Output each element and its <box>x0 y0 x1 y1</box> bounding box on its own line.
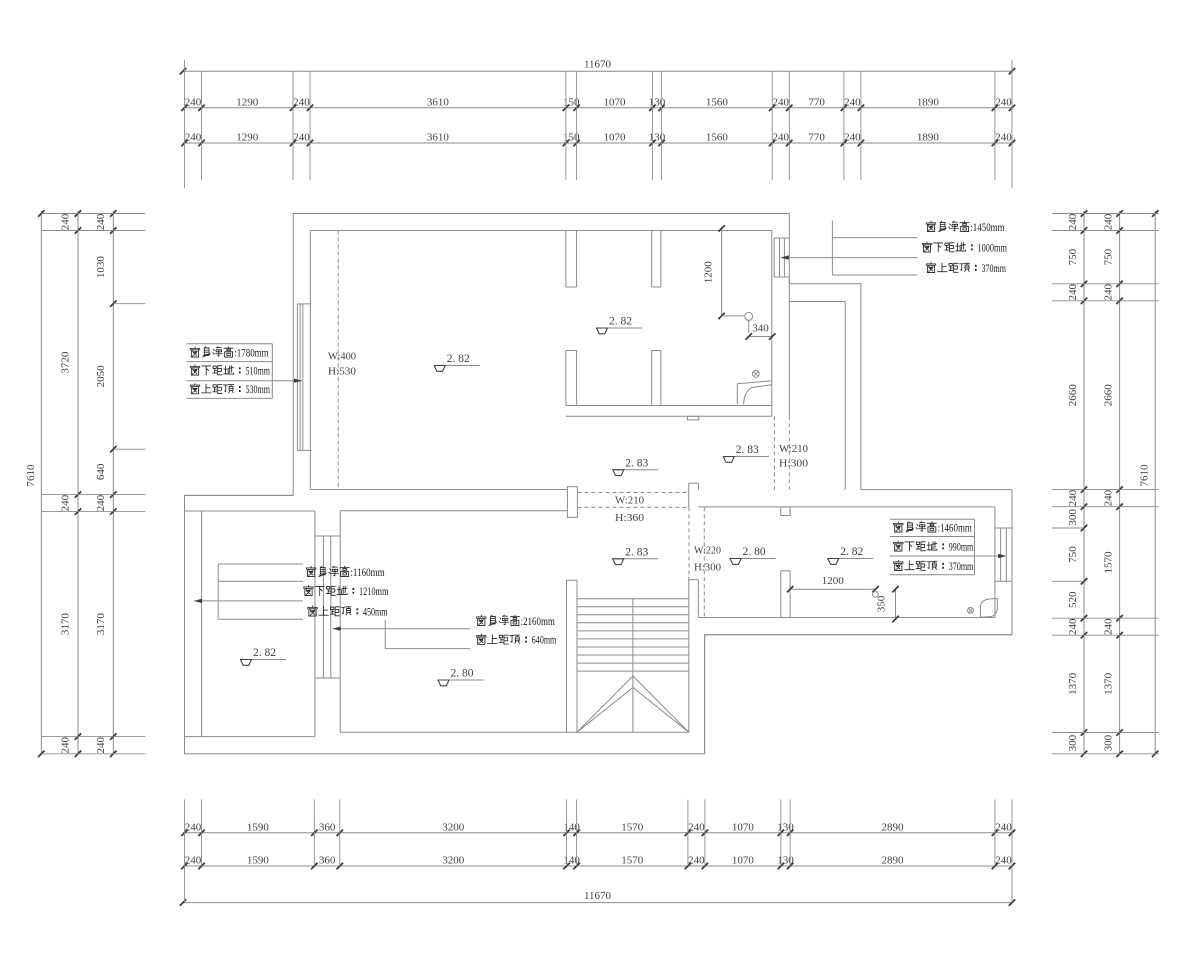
svg-text:240: 240 <box>95 736 107 753</box>
svg-text:450mm: 450mm <box>363 606 388 618</box>
svg-text:240: 240 <box>95 213 107 230</box>
svg-text:2. 82: 2. 82 <box>253 647 276 659</box>
svg-text:1560: 1560 <box>706 132 729 144</box>
svg-text:770: 770 <box>808 132 825 144</box>
svg-text:1570: 1570 <box>621 821 644 833</box>
svg-text:990mm: 990mm <box>949 541 974 553</box>
svg-text:1890: 1890 <box>917 132 940 144</box>
svg-text:140: 140 <box>563 855 580 867</box>
svg-text:370mm: 370mm <box>982 263 1007 275</box>
svg-text:1210mm: 1210mm <box>359 586 388 598</box>
svg-text:300: 300 <box>1067 734 1079 751</box>
svg-text:240: 240 <box>1067 489 1079 506</box>
svg-text:7610: 7610 <box>25 464 37 487</box>
svg-text:W:220: W:220 <box>694 545 721 557</box>
svg-text:350: 350 <box>876 595 888 612</box>
svg-text:2050: 2050 <box>95 365 107 388</box>
svg-text:240: 240 <box>1067 618 1079 635</box>
svg-text:1890: 1890 <box>917 96 940 108</box>
svg-text:240: 240 <box>1103 489 1115 506</box>
svg-text:510mm: 510mm <box>246 365 271 377</box>
svg-text:H:360: H:360 <box>615 512 645 524</box>
svg-text:240: 240 <box>995 821 1012 833</box>
svg-text:240: 240 <box>185 821 202 833</box>
svg-text:2. 83: 2. 83 <box>625 546 648 558</box>
svg-text:770: 770 <box>808 96 825 108</box>
svg-text:2. 83: 2. 83 <box>625 457 648 469</box>
svg-text:240: 240 <box>293 132 310 144</box>
svg-text:240: 240 <box>60 736 72 753</box>
svg-text:370mm: 370mm <box>949 561 974 573</box>
svg-text:1070: 1070 <box>604 132 627 144</box>
svg-text:W:400: W:400 <box>328 351 356 363</box>
svg-text:1570: 1570 <box>1103 551 1115 574</box>
svg-text::1780mm: :1780mm <box>234 347 268 359</box>
svg-text:240: 240 <box>95 494 107 511</box>
svg-text:240: 240 <box>185 855 202 867</box>
svg-text:130: 130 <box>649 96 666 108</box>
svg-text:240: 240 <box>995 132 1012 144</box>
svg-text:240: 240 <box>60 494 72 511</box>
svg-text:1070: 1070 <box>732 821 755 833</box>
svg-text:240: 240 <box>688 821 705 833</box>
svg-text:240: 240 <box>293 96 310 108</box>
svg-text:11670: 11670 <box>584 890 612 902</box>
svg-text:240: 240 <box>1067 213 1079 230</box>
svg-text:2. 83: 2. 83 <box>736 444 759 456</box>
svg-text::2160mm: :2160mm <box>521 616 555 628</box>
svg-text:300: 300 <box>1103 734 1115 751</box>
svg-text:1200: 1200 <box>703 261 715 284</box>
svg-text:11670: 11670 <box>584 59 612 71</box>
svg-text:130: 130 <box>777 855 794 867</box>
svg-text:H:300: H:300 <box>694 562 721 574</box>
svg-text:240: 240 <box>1103 213 1115 230</box>
svg-text:240: 240 <box>1103 618 1115 635</box>
svg-text:240: 240 <box>185 96 202 108</box>
svg-text:3610: 3610 <box>427 132 450 144</box>
svg-text:240: 240 <box>60 213 72 230</box>
svg-text:360: 360 <box>319 821 336 833</box>
svg-text:240: 240 <box>844 132 861 144</box>
svg-text:2. 82: 2. 82 <box>609 316 632 328</box>
svg-text:3610: 3610 <box>427 96 450 108</box>
svg-text:1070: 1070 <box>604 96 627 108</box>
svg-text:3200: 3200 <box>442 855 465 867</box>
svg-text:130: 130 <box>649 132 666 144</box>
svg-text:240: 240 <box>773 96 790 108</box>
svg-text:750: 750 <box>1067 248 1079 265</box>
svg-text:640: 640 <box>95 463 107 480</box>
svg-text:240: 240 <box>995 855 1012 867</box>
svg-text:750: 750 <box>1067 546 1079 563</box>
svg-text:2660: 2660 <box>1067 384 1079 407</box>
svg-text:1290: 1290 <box>236 132 259 144</box>
svg-text:1370: 1370 <box>1067 672 1079 695</box>
svg-text:3200: 3200 <box>442 821 465 833</box>
svg-text:2. 80: 2. 80 <box>743 546 766 558</box>
svg-text:240: 240 <box>844 96 861 108</box>
svg-text:3170: 3170 <box>95 613 107 636</box>
svg-text:240: 240 <box>688 855 705 867</box>
svg-text:640mm: 640mm <box>532 635 557 647</box>
svg-text:1590: 1590 <box>247 821 270 833</box>
svg-text:750: 750 <box>1103 248 1115 265</box>
svg-text:H:300: H:300 <box>779 458 809 470</box>
svg-text:530mm: 530mm <box>246 384 271 396</box>
svg-text:3720: 3720 <box>60 351 72 374</box>
svg-text:2890: 2890 <box>882 855 905 867</box>
svg-text:1070: 1070 <box>732 855 755 867</box>
svg-text:240: 240 <box>773 132 790 144</box>
svg-text:W:210: W:210 <box>615 495 644 507</box>
svg-text:1290: 1290 <box>236 96 259 108</box>
svg-text:3170: 3170 <box>60 613 72 636</box>
svg-text:2890: 2890 <box>882 821 905 833</box>
svg-text:W:210: W:210 <box>779 443 808 455</box>
svg-text:300: 300 <box>1067 509 1079 526</box>
svg-text:1030: 1030 <box>95 256 107 279</box>
svg-text:H:530: H:530 <box>328 366 357 378</box>
svg-text:1570: 1570 <box>621 855 644 867</box>
svg-text:240: 240 <box>1103 284 1115 301</box>
svg-text::1160mm: :1160mm <box>350 567 384 579</box>
svg-text::1460mm: :1460mm <box>938 522 972 534</box>
svg-text:2. 82: 2. 82 <box>447 353 470 365</box>
svg-text:2. 80: 2. 80 <box>451 668 474 680</box>
svg-text:1000mm: 1000mm <box>978 242 1007 254</box>
svg-text:1590: 1590 <box>247 855 270 867</box>
svg-text:1370: 1370 <box>1103 672 1115 695</box>
svg-text:2. 82: 2. 82 <box>840 546 863 558</box>
svg-text:2660: 2660 <box>1103 384 1115 407</box>
svg-text:240: 240 <box>995 96 1012 108</box>
svg-text:7610: 7610 <box>1139 464 1151 487</box>
svg-text:140: 140 <box>563 821 580 833</box>
svg-text:1200: 1200 <box>822 575 845 587</box>
svg-text:360: 360 <box>319 855 336 867</box>
svg-text:520: 520 <box>1067 591 1079 608</box>
svg-text::1450mm: :1450mm <box>970 222 1004 234</box>
svg-text:130: 130 <box>777 821 794 833</box>
svg-text:340: 340 <box>752 323 769 335</box>
svg-text:240: 240 <box>1067 284 1079 301</box>
svg-text:1560: 1560 <box>706 96 729 108</box>
svg-text:240: 240 <box>185 132 202 144</box>
